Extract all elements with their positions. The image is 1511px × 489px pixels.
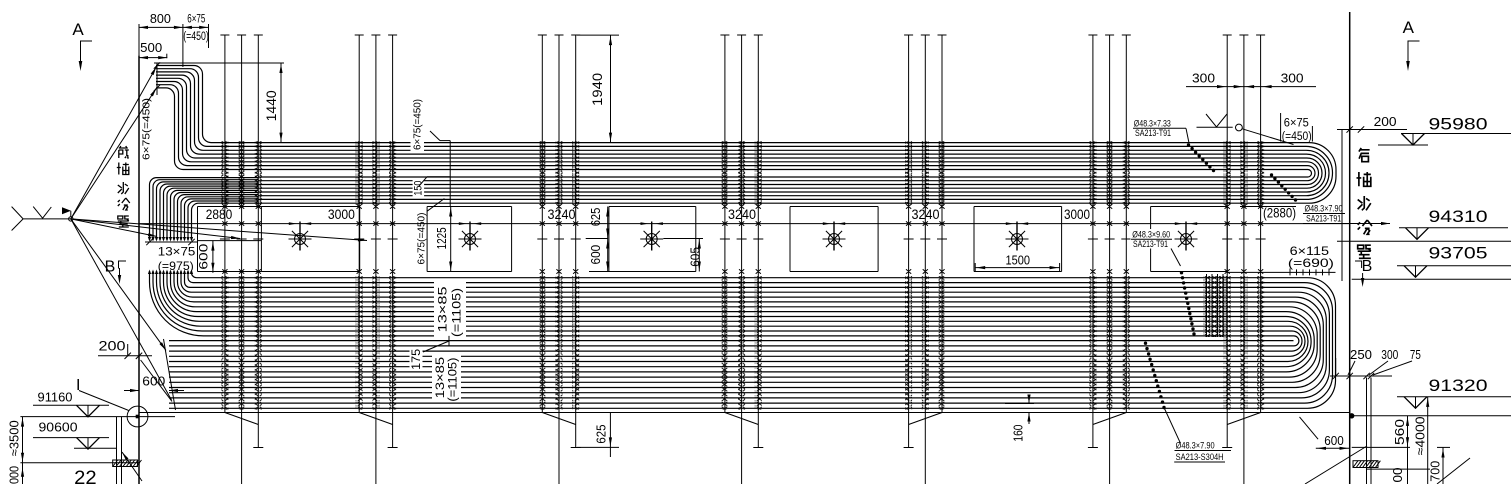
svg-text:1225: 1225 [435,227,449,249]
svg-text:175: 175 [411,349,423,370]
svg-text:(2880): (2880) [1263,206,1296,221]
svg-text:94310: 94310 [1429,208,1488,226]
svg-text:600: 600 [589,245,603,265]
svg-text:560: 560 [1393,419,1407,445]
svg-text:6×75(=450): 6×75(=450) [141,98,153,160]
svg-text:≈3500: ≈3500 [8,420,22,456]
svg-text:SA213-T91: SA213-T91 [1133,239,1168,250]
svg-text:13×85: 13×85 [438,286,450,332]
svg-text:300: 300 [1381,348,1398,362]
svg-text:300: 300 [1281,71,1304,86]
svg-text:I: I [76,377,80,394]
svg-text:6×75: 6×75 [187,14,205,26]
svg-text:3000: 3000 [1064,207,1090,222]
svg-text:(=450): (=450) [1282,131,1312,143]
svg-text:160: 160 [1012,425,1026,442]
svg-text:13×75: 13×75 [158,244,196,258]
svg-text:500: 500 [140,40,162,55]
svg-text:200: 200 [1374,114,1397,129]
svg-text:3240: 3240 [728,207,756,222]
svg-text:95980: 95980 [1429,116,1488,134]
svg-text:2880: 2880 [206,207,233,222]
svg-text:3240: 3240 [548,207,576,222]
svg-text:B: B [1362,258,1373,275]
svg-text:(=1105): (=1105) [448,357,460,401]
svg-text:A: A [1403,18,1415,37]
svg-text:(=1105): (=1105) [452,288,464,337]
svg-text:600: 600 [142,374,165,389]
svg-text:22: 22 [74,468,97,484]
svg-text:1940: 1940 [590,73,605,106]
svg-text:700: 700 [1429,461,1443,482]
svg-text:3000: 3000 [328,207,355,222]
svg-text:(=690): (=690) [1288,256,1334,270]
svg-text:1440: 1440 [264,90,279,121]
svg-text:300: 300 [1192,71,1215,86]
svg-text:90600: 90600 [39,420,78,435]
svg-text:SA213-T91: SA213-T91 [1306,214,1341,225]
svg-text:91160: 91160 [38,390,73,405]
svg-text:1500: 1500 [1006,254,1031,268]
svg-text:Ø48.3×7.90: Ø48.3×7.90 [1176,441,1215,452]
svg-text:150: 150 [413,181,425,196]
svg-text:B: B [105,259,116,276]
svg-text:≈4000: ≈4000 [1414,416,1428,455]
svg-text:625: 625 [595,425,609,444]
svg-text:13×85: 13×85 [435,357,447,399]
svg-text:91320: 91320 [1429,377,1488,395]
svg-text:800: 800 [150,11,171,26]
svg-text:605: 605 [689,247,703,267]
svg-text:3240: 3240 [912,207,940,222]
svg-text:00: 00 [1391,467,1405,482]
svg-text:250: 250 [1350,348,1372,362]
svg-text:A: A [72,20,84,39]
svg-text:93705: 93705 [1429,244,1488,262]
svg-text:SA213-T91: SA213-T91 [1135,128,1171,139]
svg-text:6×75(=450): 6×75(=450) [412,99,424,150]
svg-text:625: 625 [589,208,603,227]
svg-text:6×75: 6×75 [1284,118,1309,130]
svg-text:000: 000 [8,466,22,484]
svg-text:(=450): (=450) [183,31,209,43]
svg-text:200: 200 [99,339,126,354]
svg-text:600: 600 [197,243,211,269]
svg-text:600: 600 [1324,433,1344,448]
svg-text:75: 75 [1410,348,1421,362]
svg-text:6×75(=450): 6×75(=450) [416,213,428,265]
svg-text:(=975): (=975) [158,259,194,273]
